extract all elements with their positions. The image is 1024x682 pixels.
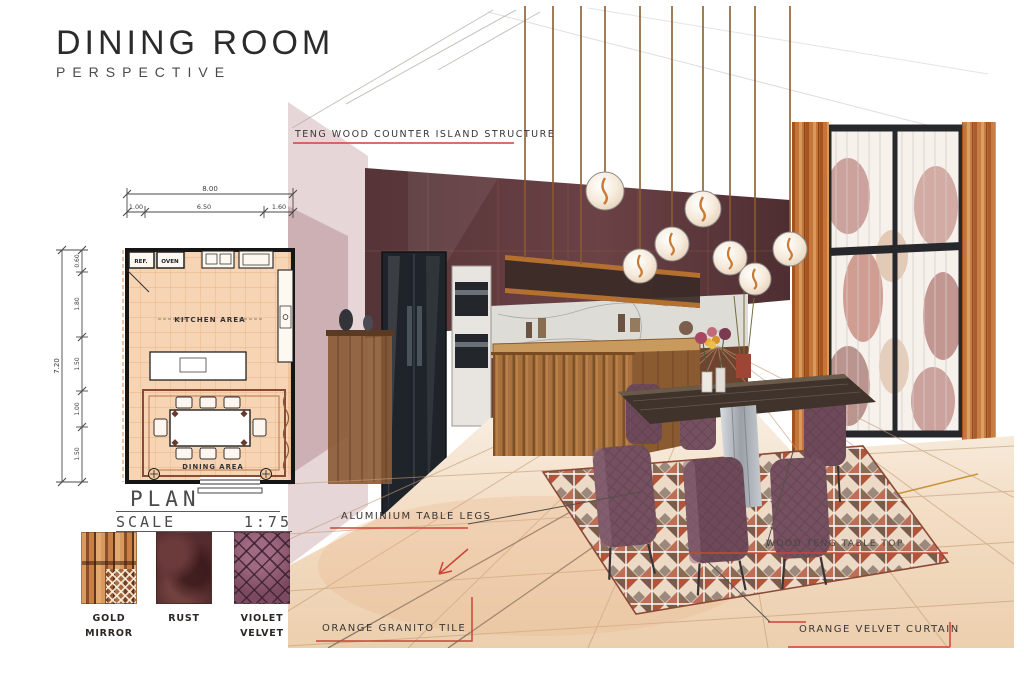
- material-legend: GOLD MIRROR RUST VIOLET VELVET: [80, 532, 294, 641]
- pendant-lights: [586, 172, 807, 295]
- material-label: VIOLET VELVET: [236, 611, 288, 641]
- gold-mirror-swatch: [81, 532, 137, 604]
- annotation-curtain: ORANGE VELVET CURTAIN: [799, 624, 960, 635]
- hanging-rack: [505, 255, 700, 308]
- oven-upper: [455, 282, 488, 316]
- plan-title: PLAN: [116, 487, 280, 512]
- dim-left-seg2: 1.80: [74, 297, 81, 311]
- dining-chair: [592, 444, 661, 581]
- pendant-globe: [739, 263, 771, 295]
- pendant-globe: [713, 241, 747, 275]
- marble-backsplash: [490, 294, 748, 358]
- dim-top-seg1: 1.00: [129, 203, 143, 211]
- pendant-globe: [623, 249, 657, 283]
- plan-dimensions-top: [123, 188, 297, 218]
- leader-tile-bracket: [316, 597, 472, 641]
- red-vase: [736, 354, 751, 378]
- leader-curtain-pointer: [706, 560, 770, 622]
- dim-left-seg3: 1.50: [74, 357, 81, 371]
- dim-top-total: 8.00: [202, 185, 218, 193]
- plan-dining-set: [143, 390, 285, 476]
- fruit: [708, 341, 716, 349]
- page-title: DINING ROOM: [56, 26, 334, 62]
- shelf-objects: [526, 314, 693, 338]
- table-flowers: [695, 327, 731, 392]
- material-rust: RUST: [155, 532, 213, 641]
- curtain-right-panel: [962, 122, 996, 452]
- plan-dimensions-left: [56, 246, 88, 486]
- oven-lower: [455, 334, 488, 368]
- floor-grid: [288, 346, 1014, 648]
- page-subtitle: PERSPECTIVE: [56, 64, 334, 80]
- ceiling-sketch-lines: [292, 8, 988, 132]
- window-frame: [828, 128, 962, 434]
- console-cabinet: [326, 309, 394, 484]
- material-label: RUST: [168, 611, 200, 626]
- plan-scale-value: 1:75: [244, 513, 292, 531]
- rug: [543, 446, 948, 614]
- material-violet-velvet: VIOLET VELVET: [230, 532, 294, 641]
- floor-plan: 8.00 1.00 6.50 1.60 7.20 0.60 1.80 1.50 …: [50, 182, 312, 494]
- dining-chair-far: [804, 392, 846, 504]
- pendant-globe: [586, 172, 624, 210]
- kitchen-island: [491, 290, 754, 456]
- console-vase: [339, 309, 353, 331]
- dim-top-seg2: 6.50: [197, 203, 211, 211]
- sheer-folds: [836, 130, 946, 432]
- leader-table-top-pointer: [766, 448, 794, 548]
- oven-upper-handle: [455, 290, 488, 295]
- plan-columns: [149, 469, 272, 480]
- sheet-title-block: DINING ROOM PERSPECTIVE: [56, 26, 334, 80]
- dining-chair: [682, 456, 751, 596]
- plan-floor-grid: [127, 250, 293, 482]
- console-vase-small: [363, 315, 373, 331]
- refrigerator: [382, 252, 446, 524]
- dining-chair-far: [680, 390, 716, 450]
- plan-label-kitchen: KITCHEN AREA: [174, 315, 245, 324]
- plan-island: [150, 352, 246, 380]
- leader-table-legs-pointer: [468, 492, 640, 524]
- floor-accent-lines: [328, 474, 978, 648]
- plan-scale-label: SCALE: [116, 513, 176, 531]
- window-sheer: [828, 128, 962, 434]
- fruit: [712, 336, 720, 344]
- plan-island-sink: [180, 358, 206, 372]
- dim-left-seg5: 1.50: [74, 447, 81, 461]
- material-gold-mirror: GOLD MIRROR: [80, 532, 138, 641]
- plan-label-oven: OVEN: [161, 259, 179, 265]
- oven-column: [452, 266, 491, 426]
- annotation-floor-tile: ORANGE GRANITO TILE: [322, 623, 466, 634]
- plan-door-swing: [127, 270, 149, 292]
- curtain-left-panel: [792, 122, 829, 456]
- dim-left-total: 7.20: [53, 358, 61, 374]
- rust-swatch: [156, 532, 212, 604]
- annotation-table-top: WOOD TENG TABLE TOP: [766, 539, 904, 549]
- pendant-rods: [525, 6, 790, 264]
- dining-chair-far: [626, 384, 662, 444]
- plan-appliances: [129, 251, 293, 362]
- plan-curtain-squiggle: [284, 394, 289, 472]
- dried-grass: [734, 290, 754, 354]
- window-foliage: [826, 158, 963, 435]
- oven-lower-handle: [455, 342, 488, 347]
- table-leg-mirror: [720, 405, 762, 510]
- pendant-globe: [773, 232, 807, 266]
- left-wall-shadow: [288, 206, 348, 476]
- annotation-table-legs: ALUMINIUM TABLE LEGS: [341, 511, 491, 522]
- violet-velvet-swatch: [234, 532, 290, 604]
- marble-veins: [498, 298, 728, 346]
- pendant-globe: [655, 227, 689, 261]
- dim-left-seg4: 1.00: [74, 402, 81, 416]
- plan-label-dining: DINING AREA: [182, 463, 243, 471]
- floor: [288, 404, 1014, 648]
- dim-top-seg3: 1.60: [272, 203, 286, 211]
- plan-caption: PLAN SCALE 1:75: [116, 487, 296, 532]
- upper-cabinet-panel: [365, 168, 790, 338]
- annotation-counter-structure: TENG WOOD COUNTER ISLAND STRUCTURE: [295, 129, 555, 140]
- dim-left-seg1: 0.60: [74, 254, 81, 268]
- dining-table: [618, 327, 876, 510]
- perspective-rendering: [288, 6, 1014, 648]
- left-wall: [288, 102, 368, 566]
- plan-walls: [127, 250, 293, 482]
- upper-cabinet-divisions: [365, 174, 790, 334]
- plan-label-ref: REF.: [134, 259, 147, 265]
- lower-cabinets: [490, 346, 748, 418]
- plan-floor-wash: [127, 250, 293, 482]
- red-arrow: [439, 549, 468, 574]
- pendant-globe: [685, 191, 721, 227]
- fruit: [704, 338, 712, 346]
- lower-cabinet-divisions: [538, 349, 688, 416]
- material-label: GOLD MIRROR: [80, 611, 138, 641]
- dining-chair: [769, 457, 832, 590]
- cabinet-gloss: [408, 171, 498, 326]
